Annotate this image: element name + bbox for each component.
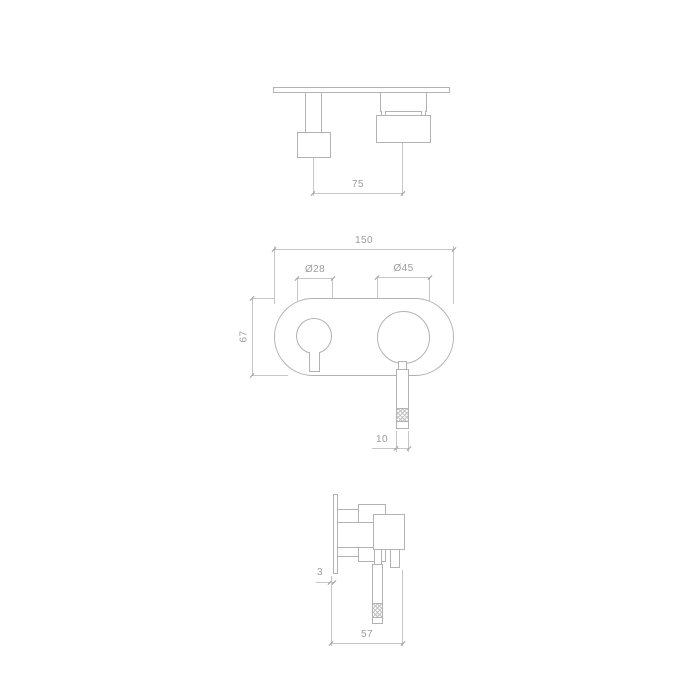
side-view-knob-block: [373, 514, 405, 550]
dim-150-label: 150: [346, 235, 382, 246]
dim-57-line: [331, 643, 403, 644]
dim-57-extension-left: [331, 576, 332, 646]
front-view-small-knob-stub: [309, 352, 320, 372]
side-view-body-bar: [337, 522, 375, 548]
side-view-front-stub: [390, 550, 400, 568]
front-view-small-knob: [296, 318, 332, 354]
dim-75-line: [313, 193, 403, 194]
technical-drawing-canvas: 75 150 Ø28 Ø45 67: [0, 0, 700, 700]
front-view-lever-knurl: [396, 408, 409, 422]
dim-45-label: Ø45: [377, 263, 430, 274]
dim-57-label: 57: [352, 629, 382, 640]
side-view-lever-neck: [374, 550, 382, 565]
dim-67-label: 67: [239, 326, 250, 348]
dim-3-label: 3: [314, 567, 326, 578]
top-view-left-knob-block: [297, 132, 331, 158]
side-view-lever-knurl: [372, 603, 383, 618]
front-view-lever-body: [396, 369, 409, 409]
dim-150-line: [274, 249, 454, 250]
dim-28-label: Ø28: [297, 264, 333, 275]
dim-28-line: [297, 278, 333, 279]
top-view-right-body-lower: [376, 115, 431, 143]
dim-150-extension-right: [453, 246, 454, 304]
side-view-lever-tip: [372, 617, 383, 624]
dim-67-extension-top: [252, 298, 274, 299]
side-view-lever-body: [372, 564, 383, 604]
dim-10-label: 10: [372, 434, 392, 445]
front-view-large-knob: [377, 311, 430, 364]
top-view-right-body-upper: [380, 93, 427, 112]
dim-75-extension-right: [402, 143, 403, 196]
top-view-left-stem: [305, 93, 322, 133]
dim-75-label: 75: [343, 179, 373, 190]
dim-10-line: [372, 448, 409, 449]
dim-45-line: [377, 277, 430, 278]
dim-tick: [331, 276, 336, 281]
dim-tick: [428, 275, 433, 280]
dim-150-extension-left: [274, 246, 275, 304]
front-view-lever-tip: [396, 421, 409, 429]
dim-67-extension-bottom: [252, 375, 288, 376]
dim-67-line: [252, 298, 253, 376]
side-view-backplate: [333, 494, 338, 574]
dim-57-extension-right: [402, 570, 403, 646]
